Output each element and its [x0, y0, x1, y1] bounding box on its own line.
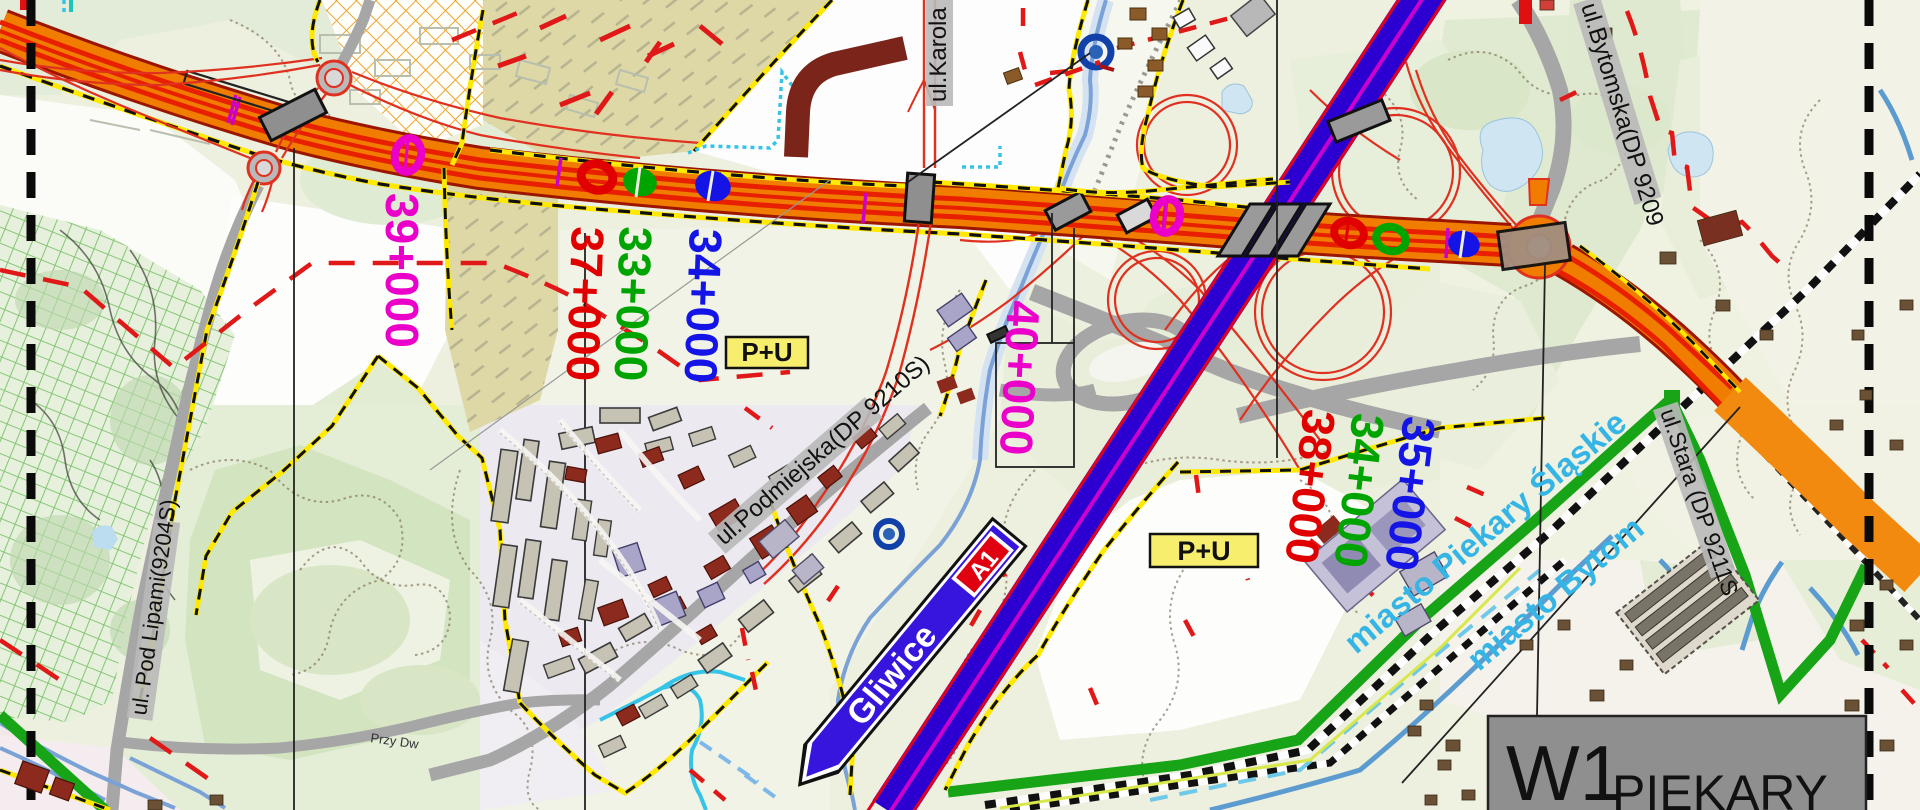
svg-text:39+000: 39+000 [376, 193, 428, 348]
svg-text:33+000: 33+000 [605, 226, 662, 383]
svg-text:40+000: 40+000 [990, 299, 1050, 456]
svg-text:34+000: 34+000 [675, 228, 732, 385]
svg-text:PIEKARY: PIEKARY [1612, 765, 1828, 810]
svg-text:W1: W1 [1506, 729, 1623, 810]
svg-text:P+U: P+U [741, 337, 792, 367]
svg-text:P+U: P+U [1177, 536, 1230, 566]
svg-text:ul.Karola M: ul.Karola M [925, 0, 952, 102]
